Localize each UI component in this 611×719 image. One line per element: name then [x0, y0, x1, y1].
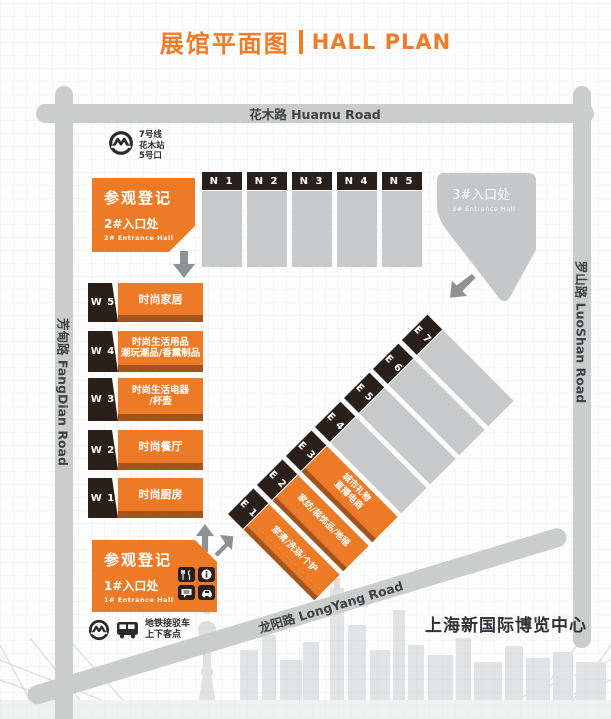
n-hall-body: [202, 191, 242, 267]
w-hall-label: W 4: [88, 331, 118, 372]
entrance-2-title: 参观登记: [104, 187, 187, 208]
title-divider: [299, 30, 303, 54]
w-hall: W 2时尚餐厅: [88, 430, 203, 470]
w-hall: W 1时尚厨房: [88, 478, 203, 518]
page-title: 展馆平面图 HALL PLAN: [0, 24, 611, 59]
n-hall-label: N 5: [382, 172, 422, 190]
consult-icon: [178, 585, 195, 600]
hall-plan-map: 展馆平面图 HALL PLAN 花木路 Huamu Road 芳甸路 FangD…: [0, 0, 611, 719]
w-hall-category-line: 潮玩潮品/香薰制品: [121, 348, 200, 360]
restaurant-icon: [178, 567, 195, 582]
n-hall-label: N 1: [202, 172, 242, 190]
title-cn: 展馆平面图: [160, 24, 290, 59]
shuttle-note: 地铁接驳车 上下客点: [88, 619, 190, 641]
n-hall-body: [292, 191, 332, 267]
w-hall-category-line: 时尚餐厅: [139, 440, 183, 453]
w-hall-label: W 3: [88, 378, 118, 421]
taxi-icon: [198, 585, 215, 600]
metro-station-text: 7号线 花木站 5号口: [139, 130, 165, 162]
metro-logo-icon: [108, 130, 134, 156]
n-hall-body: [247, 191, 287, 267]
n-hall: N 4: [337, 172, 377, 267]
w-hall: W 5时尚家居: [88, 283, 203, 322]
n-hall-label: N 2: [247, 172, 287, 190]
w-hall-category: 时尚厨房: [118, 478, 203, 518]
w-hall-category-line: 时尚生活电器: [132, 385, 189, 397]
bus-icon: [116, 621, 139, 639]
n-hall: N 1: [202, 172, 242, 267]
service-icons-grid: [178, 567, 215, 600]
venue-name: 上海新国际博览中心: [413, 611, 599, 636]
w-hall: W 3时尚生活电器/杯壶: [88, 378, 203, 421]
entrance-2-hall-en: 2# Entrance Hall: [104, 234, 187, 242]
info-icon: [198, 567, 215, 582]
arrow-down-icon: [173, 251, 195, 278]
w-hall-label: W 1: [88, 478, 118, 518]
w-hall-category-line: 时尚家居: [139, 293, 183, 306]
entrance-3-label: 3#入口处 3# Entrance Hall: [452, 184, 536, 213]
n-hall-body: [382, 191, 422, 267]
n-hall: N 3: [292, 172, 332, 267]
entrance-3-hall-cn: 3#入口处: [452, 184, 536, 203]
title-en: HALL PLAN: [312, 30, 452, 54]
n-hall-body: [337, 191, 377, 267]
metro-logo-icon: [88, 619, 110, 641]
entrance-2-hall-cn: 2#入口处: [104, 215, 187, 232]
road-luoshan-label: 罗山路 LuoShan Road: [573, 261, 592, 404]
w-hall-label: W 5: [88, 283, 118, 322]
w-hall-category: 时尚生活用品潮玩潮品/香薰制品: [118, 331, 203, 372]
w-hall-category-line: /杯壶: [149, 396, 171, 408]
w-hall-category: 时尚生活电器/杯壶: [118, 378, 203, 421]
entrance-2-box: 参观登记 2#入口处 2# Entrance Hall: [92, 178, 195, 252]
w-hall-category: 时尚餐厅: [118, 430, 203, 470]
w-hall-category-line: 时尚生活用品: [132, 337, 189, 349]
road-fangdian-label: 芳甸路 FangDian Road: [55, 318, 74, 466]
arrow-up-right-icon: [213, 534, 237, 558]
road-huamu-label: 花木路 Huamu Road: [249, 104, 381, 123]
w-hall: W 4时尚生活用品潮玩潮品/香薰制品: [88, 331, 203, 372]
n-hall: N 5: [382, 172, 422, 267]
w-hall-category-line: 时尚厨房: [139, 488, 183, 501]
w-hall-label: W 2: [88, 430, 118, 470]
n-hall-label: N 3: [292, 172, 332, 190]
w-hall-category: 时尚家居: [118, 283, 203, 322]
n-halls-group: N 1N 2N 3N 4N 5: [202, 172, 422, 267]
entrance-3-hall-en: 3# Entrance Hall: [452, 205, 536, 213]
shuttle-text: 地铁接驳车 上下客点: [145, 619, 190, 641]
arrow-down-left-icon: [450, 274, 477, 299]
n-hall-label: N 4: [337, 172, 377, 190]
metro-station-note: 7号线 花木站 5号口: [108, 130, 165, 162]
n-hall: N 2: [247, 172, 287, 267]
road-huamu: 花木路 Huamu Road: [36, 104, 594, 123]
